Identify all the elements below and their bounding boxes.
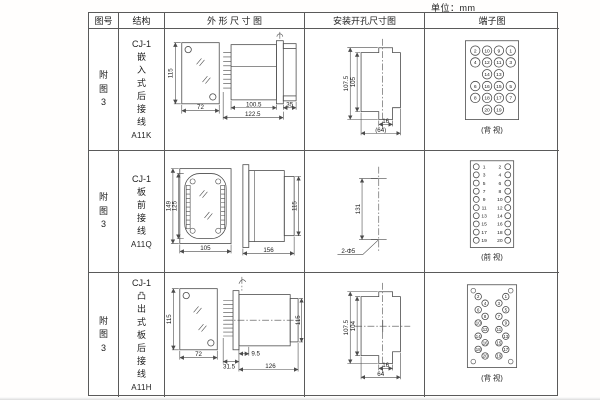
svg-text:12: 12 bbox=[484, 60, 490, 66]
structure-a11q: CJ-1 板前接线 A11Q bbox=[119, 151, 165, 273]
dim-side-h: 115 bbox=[295, 315, 302, 325]
dim-gap: 9.5 bbox=[251, 351, 260, 358]
svg-text:14: 14 bbox=[484, 72, 490, 78]
svg-text:12: 12 bbox=[497, 205, 503, 211]
svg-text:4: 4 bbox=[499, 172, 502, 178]
dim-pins: 31.5 bbox=[223, 364, 236, 371]
svg-text:17: 17 bbox=[481, 229, 487, 235]
svg-text:16: 16 bbox=[484, 83, 490, 89]
svg-text:13: 13 bbox=[503, 334, 508, 339]
terminal-svg-a11h: 21 43 65 87 109 1211 1413 1615 1817 2019… bbox=[426, 274, 558, 396]
outline-svg-a11q: 149 125 105 156 115 bbox=[166, 152, 304, 272]
svg-text:16: 16 bbox=[483, 340, 488, 345]
dim-width: 72 bbox=[197, 104, 204, 111]
svg-text:1: 1 bbox=[483, 164, 486, 170]
svg-text:15: 15 bbox=[496, 340, 501, 345]
svg-text:19: 19 bbox=[496, 354, 501, 359]
svg-text:9: 9 bbox=[498, 48, 501, 54]
dim-tab: 16 bbox=[382, 362, 389, 369]
install-svg-a11h: 107.5 104 16 64 bbox=[306, 274, 424, 396]
svg-text:8: 8 bbox=[484, 314, 487, 319]
svg-text:12: 12 bbox=[483, 327, 488, 332]
outline-drawing-a11q: 149 125 105 156 115 bbox=[165, 151, 305, 273]
manual-page: 单位：mm 图号 结构 外 形 尺 寸 图 安装开孔尺寸图 端子图 附图3 CJ… bbox=[0, 0, 600, 400]
dim-side-h: 115 bbox=[291, 200, 298, 210]
outline-svg-a11k: 115 72 100.5 35 122.5 bbox=[166, 30, 304, 150]
header-structure: 结构 bbox=[119, 13, 165, 29]
dim-body: 126 bbox=[265, 363, 276, 370]
dim-outer: 107.5 bbox=[342, 75, 349, 91]
svg-text:15: 15 bbox=[481, 221, 487, 227]
fig-no-a11h: 附图3 bbox=[89, 273, 119, 397]
dim-tab: 16 bbox=[382, 117, 389, 124]
structure-a11k: CJ-1 嵌入式后接线 A11K bbox=[119, 29, 165, 151]
dim-total: 122.5 bbox=[244, 111, 260, 118]
svg-text:3: 3 bbox=[509, 60, 512, 66]
header-terminal: 端子图 bbox=[425, 13, 559, 29]
svg-text:20: 20 bbox=[483, 354, 488, 359]
outline-svg-a11h: 115 72 9.5 31.5 126 115 bbox=[166, 274, 304, 396]
svg-text:18: 18 bbox=[484, 95, 490, 101]
install-drawing-a11h: 107.5 104 16 64 bbox=[305, 273, 425, 397]
dim-inner: 104 bbox=[350, 320, 357, 331]
mount-label: 板前接线 bbox=[136, 186, 146, 238]
dim-body: 100.5 bbox=[245, 101, 261, 108]
svg-text:11: 11 bbox=[497, 327, 502, 332]
dim-inner-h: 125 bbox=[171, 200, 178, 211]
view-label: (前 视) bbox=[481, 252, 503, 261]
model-label: CJ-1 bbox=[132, 39, 151, 49]
dim-width: 64 bbox=[377, 371, 384, 378]
svg-text:15: 15 bbox=[496, 83, 502, 89]
mount-label: 嵌入式后接线 bbox=[137, 51, 147, 129]
handle-hook bbox=[238, 280, 245, 284]
terminal-pins bbox=[223, 301, 233, 336]
dim-height: 115 bbox=[167, 67, 174, 77]
svg-text:6: 6 bbox=[474, 83, 477, 89]
svg-text:14: 14 bbox=[476, 334, 481, 339]
svg-text:7: 7 bbox=[483, 188, 486, 194]
svg-text:20: 20 bbox=[497, 238, 503, 244]
svg-text:20: 20 bbox=[484, 107, 490, 113]
spec-table: 图号 结构 外 形 尺 寸 图 安装开孔尺寸图 端子图 附图3 CJ-1 嵌入式… bbox=[88, 12, 558, 396]
svg-text:10: 10 bbox=[476, 321, 481, 326]
svg-text:17: 17 bbox=[503, 347, 508, 352]
install-drawing-a11k: 107.5 105 16 (64) bbox=[305, 29, 425, 151]
svg-text:10: 10 bbox=[497, 197, 503, 203]
glass-hatch bbox=[196, 58, 210, 83]
header-fig-no: 图号 bbox=[89, 13, 119, 29]
svg-text:3: 3 bbox=[483, 172, 486, 178]
dim-width: (64) bbox=[375, 126, 386, 133]
svg-text:6: 6 bbox=[499, 180, 502, 186]
terminal-svg-a11k: 2 10 9 1 4 12 11 3 14 13 6 16 15 5 8 18 bbox=[426, 30, 558, 150]
svg-text:14: 14 bbox=[497, 213, 503, 219]
model-label: CJ-1 bbox=[132, 174, 151, 184]
svg-text:9: 9 bbox=[483, 197, 486, 203]
install-drawing-a11q: 131 2-Φ5 bbox=[305, 151, 425, 273]
fig-no-a11q: 附图3 bbox=[89, 151, 119, 273]
svg-text:17: 17 bbox=[496, 95, 502, 101]
dim-width: 72 bbox=[195, 351, 202, 358]
svg-text:19: 19 bbox=[481, 238, 487, 244]
outline-drawing-a11h: 115 72 9.5 31.5 126 115 bbox=[165, 273, 305, 397]
view-label: (背 视) bbox=[481, 373, 503, 382]
svg-text:1: 1 bbox=[509, 48, 512, 54]
hole-callout: 2-Φ5 bbox=[341, 247, 355, 254]
svg-text:11: 11 bbox=[496, 60, 501, 66]
dim-length: 156 bbox=[263, 246, 274, 253]
cutout-outline bbox=[361, 47, 400, 119]
code-label: A11Q bbox=[131, 240, 152, 249]
svg-text:6: 6 bbox=[477, 307, 480, 312]
outline-drawing-a11k: 115 72 100.5 35 122.5 bbox=[165, 29, 305, 151]
dim-inner: 105 bbox=[350, 76, 357, 87]
terminal-svg-a11q: 12 34 56 78 910 1112 1314 1516 1718 1920… bbox=[426, 152, 558, 272]
svg-text:13: 13 bbox=[496, 72, 502, 78]
svg-text:16: 16 bbox=[497, 221, 503, 227]
terminal-drawing-a11h: 21 43 65 87 109 1211 1413 1615 1817 2019… bbox=[425, 273, 559, 397]
dim-right: 35 bbox=[286, 101, 293, 108]
svg-text:5: 5 bbox=[509, 83, 512, 89]
terminal-grid: 12 34 56 78 910 1112 1314 1516 1718 1920 bbox=[473, 163, 510, 243]
terminal-pins bbox=[223, 52, 231, 87]
header-install-holes: 安装开孔尺寸图 bbox=[305, 13, 425, 29]
code-label: A11K bbox=[131, 131, 151, 140]
dim-width: 105 bbox=[200, 244, 211, 251]
glass-hatch bbox=[199, 190, 212, 219]
svg-text:13: 13 bbox=[481, 213, 487, 219]
svg-text:4: 4 bbox=[474, 60, 477, 66]
svg-text:2: 2 bbox=[474, 48, 477, 54]
dim-height: 115 bbox=[166, 314, 173, 324]
terminal-grid: 21 43 65 87 109 1211 1413 1615 1817 2019 bbox=[475, 293, 509, 359]
cutout-outline bbox=[361, 292, 400, 364]
svg-text:8: 8 bbox=[499, 188, 502, 194]
svg-text:7: 7 bbox=[498, 314, 501, 319]
header-outline-dims: 外 形 尺 寸 图 bbox=[165, 13, 305, 29]
svg-text:11: 11 bbox=[482, 205, 487, 211]
terminal-drawing-a11q: 12 34 56 78 910 1112 1314 1516 1718 1920… bbox=[425, 151, 559, 273]
view-label: (背 视) bbox=[481, 125, 503, 134]
svg-text:5: 5 bbox=[483, 180, 486, 186]
model-label: CJ-1 bbox=[132, 278, 151, 288]
terminal-grid: 2 10 9 1 4 12 11 3 14 13 6 16 15 5 8 18 bbox=[471, 45, 516, 114]
svg-text:2: 2 bbox=[499, 164, 502, 170]
svg-text:2: 2 bbox=[477, 294, 480, 299]
svg-text:19: 19 bbox=[496, 107, 502, 113]
install-svg-a11q: 131 2-Φ5 bbox=[306, 152, 424, 272]
svg-text:1: 1 bbox=[505, 294, 508, 299]
terminal-drawing-a11k: 2 10 9 1 4 12 11 3 14 13 6 16 15 5 8 18 bbox=[425, 29, 559, 151]
mount-label: 凸出式板后接线 bbox=[137, 290, 147, 381]
svg-text:18: 18 bbox=[476, 347, 481, 352]
svg-text:3: 3 bbox=[498, 301, 501, 306]
glass-hatch bbox=[193, 306, 206, 331]
structure-a11h: CJ-1 凸出式板后接线 A11H bbox=[119, 273, 165, 397]
install-svg-a11k: 107.5 105 16 (64) bbox=[306, 30, 424, 150]
svg-text:9: 9 bbox=[505, 321, 508, 326]
svg-text:8: 8 bbox=[474, 95, 477, 101]
svg-text:10: 10 bbox=[484, 48, 490, 54]
code-label: A11H bbox=[131, 383, 152, 392]
terminal-strip-right bbox=[220, 189, 224, 224]
dim-outer: 107.5 bbox=[342, 319, 349, 335]
svg-text:7: 7 bbox=[509, 95, 512, 101]
svg-text:4: 4 bbox=[484, 301, 487, 306]
fig-no-a11k: 附图3 bbox=[89, 29, 119, 151]
dim-spacing: 131 bbox=[355, 203, 362, 214]
svg-text:18: 18 bbox=[497, 229, 503, 235]
terminal-strip-left bbox=[186, 189, 190, 224]
svg-text:5: 5 bbox=[505, 307, 508, 312]
